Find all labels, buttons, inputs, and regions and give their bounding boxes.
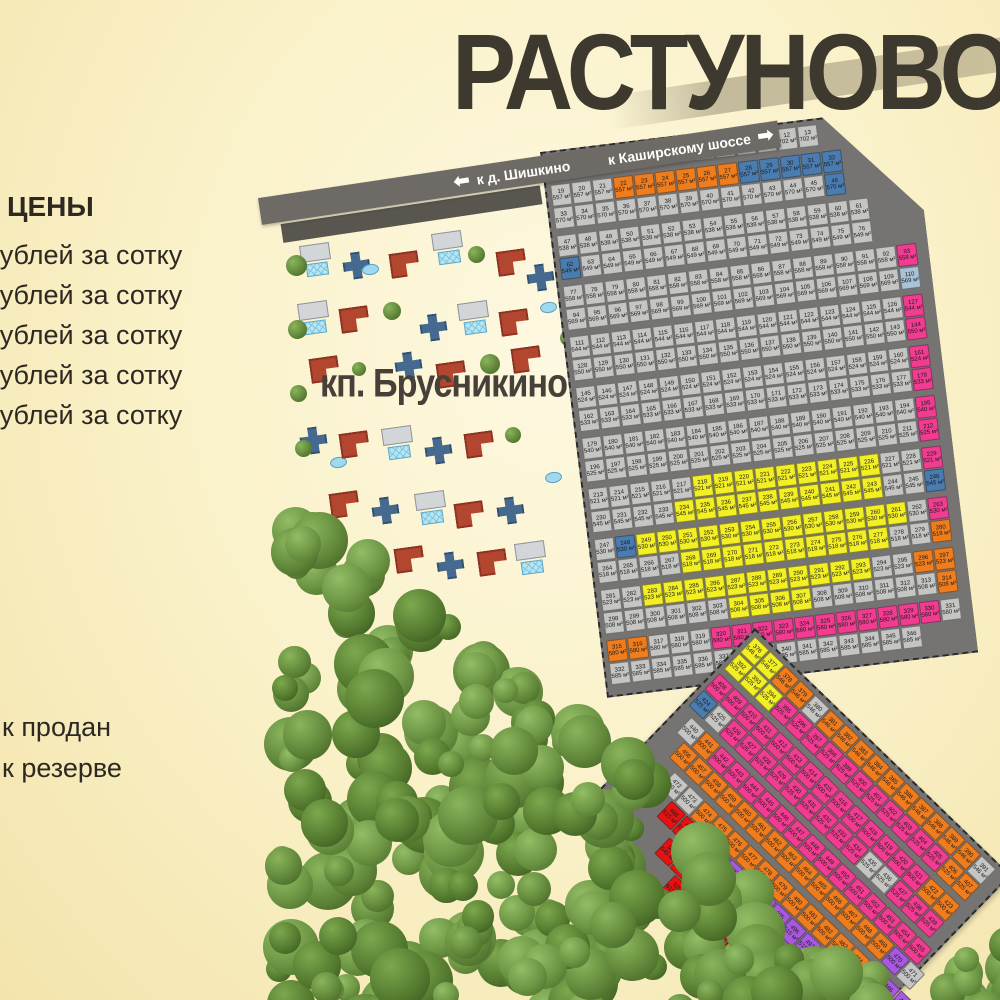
plot-242[interactable]: 242545 м² bbox=[840, 478, 863, 502]
plot-226[interactable]: 226521 м² bbox=[858, 453, 881, 477]
plot-88[interactable]: 88558 м² bbox=[792, 256, 815, 280]
plot-62[interactable]: 62549 м² bbox=[559, 256, 582, 280]
plot-147[interactable]: 147524 м² bbox=[617, 380, 640, 404]
plot-221[interactable]: 221521 м² bbox=[754, 466, 777, 490]
plot-271[interactable]: 271518 м² bbox=[742, 542, 765, 566]
plot-342[interactable]: 342585 м² bbox=[817, 635, 840, 659]
plot-341[interactable]: 341585 м² bbox=[796, 638, 819, 662]
plot-136[interactable]: 136550 м² bbox=[738, 337, 761, 361]
plot-308[interactable]: 308508 м² bbox=[811, 585, 834, 609]
plot-234[interactable]: 234545 м² bbox=[674, 499, 697, 523]
plot-197[interactable]: 197525 м² bbox=[605, 456, 628, 480]
plot-99[interactable]: 99569 м² bbox=[670, 294, 693, 318]
plot-295[interactable]: 295523 м² bbox=[892, 552, 915, 576]
plot-313[interactable]: 313508 м² bbox=[915, 572, 938, 596]
plot-293[interactable]: 293523 м² bbox=[850, 557, 873, 581]
plot-345[interactable]: 345585 м² bbox=[880, 628, 903, 652]
plot-141[interactable]: 141550 м² bbox=[843, 324, 866, 348]
plot-71[interactable]: 71549 м² bbox=[747, 233, 770, 257]
plot-235[interactable]: 235545 м² bbox=[694, 496, 717, 520]
plot-297[interactable]: 297523 м² bbox=[933, 547, 956, 571]
plot-104[interactable]: 104569 м² bbox=[774, 281, 797, 305]
plot-250[interactable]: 250530 м² bbox=[656, 529, 679, 553]
plot-94[interactable]: 94569 м² bbox=[565, 307, 588, 331]
plot-275[interactable]: 275518 м² bbox=[826, 532, 849, 556]
plot-56[interactable]: 56538 м² bbox=[744, 210, 767, 234]
plot-287[interactable]: 287523 м² bbox=[725, 572, 748, 596]
plot-115[interactable]: 115544 м² bbox=[652, 324, 675, 348]
plot-166[interactable]: 166533 м² bbox=[661, 398, 684, 422]
plot-263[interactable]: 263530 м² bbox=[927, 496, 950, 520]
plot-268[interactable]: 268518 м² bbox=[680, 550, 703, 574]
plot-258[interactable]: 258530 м² bbox=[823, 509, 846, 533]
plot-245[interactable]: 245545 м² bbox=[903, 471, 926, 495]
plot-257[interactable]: 257530 м² bbox=[802, 511, 825, 535]
plot-264[interactable]: 264518 м² bbox=[596, 560, 619, 584]
plot-211[interactable]: 211525 м² bbox=[897, 420, 920, 444]
plot-132[interactable]: 132550 м² bbox=[655, 347, 678, 371]
plot-244[interactable]: 244545 м² bbox=[882, 473, 905, 497]
plot-83[interactable]: 83558 м² bbox=[688, 268, 711, 292]
plot-165[interactable]: 165533 м² bbox=[640, 400, 663, 424]
plot-193[interactable]: 193540 м² bbox=[873, 400, 896, 424]
plot-330[interactable]: 330580 м² bbox=[919, 600, 942, 624]
plot-280[interactable]: 280518 м² bbox=[930, 519, 953, 543]
plot-231[interactable]: 231545 м² bbox=[611, 507, 634, 531]
plot-49[interactable]: 49538 м² bbox=[598, 228, 621, 252]
plot-78[interactable]: 78558 м² bbox=[583, 281, 606, 305]
plot-192[interactable]: 192540 м² bbox=[852, 402, 875, 426]
plot-306[interactable]: 306508 м² bbox=[769, 590, 792, 614]
plot-93[interactable]: 93558 м² bbox=[896, 243, 919, 267]
plot-346[interactable]: 346585 м² bbox=[901, 625, 924, 649]
plot-65[interactable]: 65549 м² bbox=[622, 248, 645, 272]
plot-28[interactable]: 28557 м² bbox=[738, 160, 761, 184]
plot-334[interactable]: 334585 м² bbox=[651, 656, 674, 680]
plot-72[interactable]: 72549 м² bbox=[768, 230, 791, 254]
plot-207[interactable]: 207525 м² bbox=[813, 430, 836, 454]
plot-146[interactable]: 146524 м² bbox=[596, 382, 619, 406]
plot-32[interactable]: 32557 м² bbox=[821, 149, 844, 173]
plot-66[interactable]: 66549 м² bbox=[642, 246, 665, 270]
plot-98[interactable]: 98569 м² bbox=[649, 296, 672, 320]
plot-97[interactable]: 97569 м² bbox=[628, 299, 651, 323]
plot-333[interactable]: 333585 м² bbox=[630, 658, 653, 682]
plot-24[interactable]: 24557 м² bbox=[654, 170, 677, 194]
plot-210[interactable]: 210525 м² bbox=[876, 423, 899, 447]
plot-298[interactable]: 298508 м² bbox=[603, 610, 626, 634]
plot-183[interactable]: 183540 м² bbox=[665, 425, 688, 449]
plot-29[interactable]: 29557 м² bbox=[759, 157, 782, 181]
plot-261[interactable]: 261530 м² bbox=[885, 501, 908, 525]
plot-328[interactable]: 328580 м² bbox=[877, 605, 900, 629]
plot-169[interactable]: 169533 м² bbox=[724, 390, 747, 414]
plot-248[interactable]: 248530 м² bbox=[614, 534, 637, 558]
plot-153[interactable]: 153524 м² bbox=[742, 365, 765, 389]
plot-19[interactable]: 19557 м² bbox=[550, 183, 573, 207]
plot-117[interactable]: 117544 м² bbox=[694, 319, 717, 343]
plot-276[interactable]: 276518 м² bbox=[847, 529, 870, 553]
plot-265[interactable]: 265518 м² bbox=[617, 557, 640, 581]
plot-110[interactable]: 110569 м² bbox=[899, 266, 922, 290]
plot-247[interactable]: 247530 м² bbox=[594, 537, 617, 561]
plot-249[interactable]: 249530 м² bbox=[635, 532, 658, 556]
plot-310[interactable]: 310508 м² bbox=[853, 580, 876, 604]
plot-21[interactable]: 21557 м² bbox=[592, 177, 615, 201]
plot-33[interactable]: 33570 м² bbox=[553, 205, 576, 229]
plot-343[interactable]: 343585 м² bbox=[838, 633, 861, 657]
plot-272[interactable]: 272518 м² bbox=[763, 539, 786, 563]
plot-266[interactable]: 266518 м² bbox=[638, 555, 661, 579]
plot-238[interactable]: 238545 м² bbox=[757, 489, 780, 513]
plot-156[interactable]: 156524 м² bbox=[804, 357, 827, 381]
plot-213[interactable]: 213521 м² bbox=[587, 486, 610, 510]
plot-332[interactable]: 332585 м² bbox=[609, 661, 632, 685]
plot-292[interactable]: 292523 м² bbox=[829, 559, 852, 583]
plot-311[interactable]: 311508 м² bbox=[874, 577, 897, 601]
plot-52[interactable]: 52538 м² bbox=[661, 220, 684, 244]
plot-219[interactable]: 219521 м² bbox=[712, 471, 735, 495]
plot-222[interactable]: 222521 м² bbox=[775, 463, 798, 487]
plot-68[interactable]: 68549 м² bbox=[684, 241, 707, 265]
plot-186[interactable]: 186540 м² bbox=[727, 418, 750, 442]
plot-59[interactable]: 59538 м² bbox=[806, 202, 829, 226]
plot-329[interactable]: 329580 м² bbox=[898, 602, 921, 626]
plot-95[interactable]: 95569 м² bbox=[586, 304, 609, 328]
plot-324[interactable]: 324580 м² bbox=[794, 615, 817, 639]
plot-143[interactable]: 143550 м² bbox=[884, 319, 907, 343]
plot-31[interactable]: 31557 м² bbox=[800, 152, 823, 176]
plot-172[interactable]: 172533 м² bbox=[786, 382, 809, 406]
plot-134[interactable]: 134550 м² bbox=[697, 342, 720, 366]
plot-55[interactable]: 55538 м² bbox=[723, 213, 746, 237]
plot-223[interactable]: 223521 м² bbox=[796, 461, 819, 485]
plot-46[interactable]: 46570 м² bbox=[824, 172, 847, 196]
plot-44[interactable]: 44570 м² bbox=[782, 177, 805, 201]
plot-61[interactable]: 61538 м² bbox=[848, 197, 871, 221]
plot-108[interactable]: 108569 м² bbox=[857, 271, 880, 295]
plot-282[interactable]: 282523 м² bbox=[621, 585, 644, 609]
plot-168[interactable]: 168533 м² bbox=[703, 393, 726, 417]
plot-174[interactable]: 174533 м² bbox=[828, 377, 851, 401]
plot-269[interactable]: 269518 м² bbox=[701, 547, 724, 571]
plot-274[interactable]: 274518 м² bbox=[805, 534, 828, 558]
plot-260[interactable]: 260530 м² bbox=[865, 504, 888, 528]
plot-34[interactable]: 34570 м² bbox=[574, 203, 597, 227]
plot-344[interactable]: 344585 м² bbox=[859, 630, 882, 654]
plot-135[interactable]: 135550 м² bbox=[717, 339, 740, 363]
plot-317[interactable]: 317580 м² bbox=[648, 633, 671, 657]
plot-22[interactable]: 22557 м² bbox=[613, 175, 636, 199]
plot-243[interactable]: 243545 м² bbox=[861, 476, 884, 500]
plot-281[interactable]: 281523 м² bbox=[600, 588, 623, 612]
plot-53[interactable]: 53538 м² bbox=[681, 218, 704, 242]
plot-289[interactable]: 289523 м² bbox=[767, 567, 790, 591]
plot-309[interactable]: 309508 м² bbox=[832, 582, 855, 606]
plot-76[interactable]: 76549 м² bbox=[851, 220, 874, 244]
plot-109[interactable]: 109569 м² bbox=[878, 268, 901, 292]
plot-86[interactable]: 86558 м² bbox=[750, 261, 773, 285]
plot-300[interactable]: 300508 м² bbox=[644, 605, 667, 629]
plot-233[interactable]: 233545 м² bbox=[653, 501, 676, 525]
plot-252[interactable]: 252530 м² bbox=[698, 524, 721, 548]
plot-218[interactable]: 218521 м² bbox=[692, 474, 715, 498]
plot-157[interactable]: 157524 м² bbox=[825, 354, 848, 378]
plot-63[interactable]: 63549 м² bbox=[580, 253, 603, 277]
plot-323[interactable]: 323580 м² bbox=[773, 618, 796, 642]
plot-58[interactable]: 58538 м² bbox=[786, 205, 809, 229]
plot-152[interactable]: 152524 м² bbox=[721, 367, 744, 391]
plot-319[interactable]: 319580 м² bbox=[689, 628, 712, 652]
plot-251[interactable]: 251530 м² bbox=[677, 527, 700, 551]
plot-196[interactable]: 196525 м² bbox=[584, 459, 607, 483]
plot-240[interactable]: 240545 м² bbox=[799, 484, 822, 508]
plot-188[interactable]: 188540 м² bbox=[769, 413, 792, 437]
plot-206[interactable]: 206525 м² bbox=[792, 433, 815, 457]
plot-77[interactable]: 77558 м² bbox=[563, 284, 586, 308]
plot-80[interactable]: 80558 м² bbox=[625, 276, 648, 300]
plot-191[interactable]: 191540 м² bbox=[831, 405, 854, 429]
plot-291[interactable]: 291523 м² bbox=[808, 562, 831, 586]
plot-25[interactable]: 25557 м² bbox=[675, 167, 698, 191]
plot-81[interactable]: 81558 м² bbox=[646, 274, 669, 298]
plot-224[interactable]: 224521 м² bbox=[817, 458, 840, 482]
plot-37[interactable]: 37570 м² bbox=[636, 195, 659, 219]
plot-184[interactable]: 184540 м² bbox=[685, 423, 708, 447]
plot-170[interactable]: 170533 м² bbox=[745, 387, 768, 411]
plot-164[interactable]: 164533 м² bbox=[619, 403, 642, 427]
plot-304[interactable]: 304508 м² bbox=[728, 595, 751, 619]
plot-299[interactable]: 299508 м² bbox=[623, 608, 646, 632]
plot-69[interactable]: 69549 м² bbox=[705, 238, 728, 262]
plot-119[interactable]: 119544 м² bbox=[735, 314, 758, 338]
plot-90[interactable]: 90558 м² bbox=[833, 251, 856, 275]
plot-149[interactable]: 149524 м² bbox=[658, 375, 681, 399]
plot-212[interactable]: 212525 м² bbox=[917, 418, 940, 442]
plot-70[interactable]: 70549 м² bbox=[726, 236, 749, 260]
plot-89[interactable]: 89558 м² bbox=[813, 253, 836, 277]
plot-167[interactable]: 167533 м² bbox=[682, 395, 705, 419]
plot-327[interactable]: 327580 м² bbox=[856, 607, 879, 631]
plot-284[interactable]: 284523 м² bbox=[662, 580, 685, 604]
plot-187[interactable]: 187540 м² bbox=[748, 415, 771, 439]
plot-303[interactable]: 303508 м² bbox=[707, 598, 730, 622]
plot-179[interactable]: 179540 м² bbox=[581, 436, 604, 460]
plot-181[interactable]: 181540 м² bbox=[623, 431, 646, 455]
plot-67[interactable]: 67549 м² bbox=[663, 243, 686, 267]
plot-199[interactable]: 199525 м² bbox=[647, 451, 670, 475]
plot-112[interactable]: 112544 м² bbox=[590, 332, 613, 356]
plot-124[interactable]: 124544 м² bbox=[840, 301, 863, 325]
plot-113[interactable]: 113544 м² bbox=[610, 329, 633, 353]
plot-215[interactable]: 215521 м² bbox=[629, 481, 652, 505]
plot-155[interactable]: 155524 м² bbox=[783, 359, 806, 383]
plot-40[interactable]: 40570 м² bbox=[699, 187, 722, 211]
plot-177[interactable]: 177533 м² bbox=[890, 369, 913, 393]
plot-103[interactable]: 103569 м² bbox=[753, 284, 776, 308]
plot-296[interactable]: 296523 м² bbox=[912, 549, 935, 573]
plot-60[interactable]: 60538 м² bbox=[827, 200, 850, 224]
plot-162[interactable]: 162533 м² bbox=[578, 408, 601, 432]
plot-85[interactable]: 85558 м² bbox=[729, 263, 752, 287]
plot-42[interactable]: 42570 м² bbox=[740, 182, 763, 206]
plot-87[interactable]: 87558 м² bbox=[771, 258, 794, 282]
plot-189[interactable]: 189540 м² bbox=[790, 410, 813, 434]
plot-158[interactable]: 158524 м² bbox=[846, 352, 869, 376]
plot-175[interactable]: 175533 м² bbox=[849, 375, 872, 399]
plot-294[interactable]: 294523 м² bbox=[871, 554, 894, 578]
plot-202[interactable]: 202525 м² bbox=[709, 443, 732, 467]
plot-301[interactable]: 301508 м² bbox=[665, 603, 688, 627]
plot-79[interactable]: 79558 м² bbox=[604, 279, 627, 303]
plot-230[interactable]: 230545 м² bbox=[590, 509, 613, 533]
plot-107[interactable]: 107569 м² bbox=[836, 273, 859, 297]
plot-148[interactable]: 148524 м² bbox=[637, 377, 660, 401]
plot-38[interactable]: 38570 м² bbox=[657, 193, 680, 217]
plot-173[interactable]: 173533 м² bbox=[807, 380, 830, 404]
plot-64[interactable]: 64549 м² bbox=[601, 251, 624, 275]
plot-26[interactable]: 26557 м² bbox=[696, 165, 719, 189]
plot-285[interactable]: 285523 м² bbox=[683, 577, 706, 601]
plot-151[interactable]: 151524 м² bbox=[700, 370, 723, 394]
plot-120[interactable]: 120544 м² bbox=[756, 311, 779, 335]
plot-126[interactable]: 126544 м² bbox=[881, 296, 904, 320]
plot-73[interactable]: 73549 м² bbox=[788, 228, 811, 252]
plot-102[interactable]: 102569 м² bbox=[732, 286, 755, 310]
plot-305[interactable]: 305508 м² bbox=[749, 592, 772, 616]
plot-209[interactable]: 209525 м² bbox=[855, 425, 878, 449]
plot-137[interactable]: 137550 м² bbox=[759, 334, 782, 358]
plot-228[interactable]: 228521 м² bbox=[900, 448, 923, 472]
plot-123[interactable]: 123544 м² bbox=[819, 304, 842, 328]
plot-100[interactable]: 100569 м² bbox=[690, 291, 713, 315]
plot-232[interactable]: 232545 м² bbox=[632, 504, 655, 528]
plot-255[interactable]: 255530 м² bbox=[760, 516, 783, 540]
plot-74[interactable]: 74549 м² bbox=[809, 225, 832, 249]
plot-144[interactable]: 144550 м² bbox=[905, 316, 928, 340]
plot-302[interactable]: 302508 м² bbox=[686, 600, 709, 624]
plot-43[interactable]: 43570 м² bbox=[761, 180, 784, 204]
plot-35[interactable]: 35570 м² bbox=[595, 200, 618, 224]
plot-178[interactable]: 178533 м² bbox=[911, 367, 934, 391]
plot-283[interactable]: 283523 м² bbox=[642, 582, 665, 606]
plot-150[interactable]: 150524 м² bbox=[679, 372, 702, 396]
plot-54[interactable]: 54538 м² bbox=[702, 215, 725, 239]
plot-140[interactable]: 140550 м² bbox=[822, 327, 845, 351]
plot-259[interactable]: 259530 м² bbox=[844, 506, 867, 530]
plot-121[interactable]: 121544 м² bbox=[777, 309, 800, 333]
plot-27[interactable]: 27557 м² bbox=[717, 162, 740, 186]
plot-314[interactable]: 314508 м² bbox=[936, 569, 959, 593]
plot-214[interactable]: 214521 м² bbox=[608, 484, 631, 508]
plot-125[interactable]: 125544 м² bbox=[861, 299, 884, 323]
plot-320[interactable]: 320580 м² bbox=[710, 625, 733, 649]
plot-331[interactable]: 331580 м² bbox=[940, 597, 963, 621]
plot-114[interactable]: 114544 м² bbox=[631, 327, 654, 351]
plot-270[interactable]: 270518 м² bbox=[721, 544, 744, 568]
plot-316[interactable]: 316580 м² bbox=[627, 636, 650, 660]
plot-106[interactable]: 106569 м² bbox=[815, 276, 838, 300]
plot-256[interactable]: 256530 м² bbox=[781, 514, 804, 538]
plot-111[interactable]: 111544 м² bbox=[569, 334, 592, 358]
plot-326[interactable]: 326580 м² bbox=[835, 610, 858, 634]
plot-139[interactable]: 139550 м² bbox=[801, 329, 824, 353]
plot-30[interactable]: 30557 м² bbox=[779, 154, 802, 178]
plot-47[interactable]: 47538 м² bbox=[556, 233, 579, 257]
plot-57[interactable]: 57538 м² bbox=[765, 208, 788, 232]
plot-91[interactable]: 91558 м² bbox=[854, 248, 877, 272]
plot-133[interactable]: 133550 м² bbox=[676, 344, 699, 368]
plot-39[interactable]: 39570 м² bbox=[678, 190, 701, 214]
plot-237[interactable]: 237545 м² bbox=[736, 491, 759, 515]
plot-23[interactable]: 23557 м² bbox=[633, 172, 656, 196]
plot-84[interactable]: 84558 м² bbox=[708, 266, 731, 290]
plot-154[interactable]: 154524 м² bbox=[763, 362, 786, 386]
plot-131[interactable]: 131550 м² bbox=[634, 350, 657, 374]
plot-205[interactable]: 205525 м² bbox=[772, 435, 795, 459]
plot-278[interactable]: 278518 м² bbox=[888, 524, 911, 548]
plot-51[interactable]: 51538 м² bbox=[640, 223, 663, 247]
plot-194[interactable]: 194540 м² bbox=[894, 397, 917, 421]
plot-286[interactable]: 286523 м² bbox=[704, 575, 727, 599]
plot-176[interactable]: 176533 м² bbox=[870, 372, 893, 396]
plot-277[interactable]: 277518 м² bbox=[867, 526, 890, 550]
plot-159[interactable]: 159524 м² bbox=[867, 349, 890, 373]
plot-185[interactable]: 185540 м² bbox=[706, 420, 729, 444]
plot-288[interactable]: 288523 м² bbox=[746, 570, 769, 594]
plot-138[interactable]: 138550 м² bbox=[780, 332, 803, 356]
plot-217[interactable]: 217521 м² bbox=[671, 476, 694, 500]
plot-279[interactable]: 279518 м² bbox=[909, 521, 932, 545]
plot-50[interactable]: 50538 м² bbox=[619, 226, 642, 250]
plot-254[interactable]: 254530 м² bbox=[740, 519, 763, 543]
plot-48[interactable]: 48538 м² bbox=[577, 231, 600, 255]
plot-82[interactable]: 82558 м² bbox=[667, 271, 690, 295]
plot-190[interactable]: 190540 м² bbox=[810, 408, 833, 432]
plot-105[interactable]: 105569 м² bbox=[795, 278, 818, 302]
plot-290[interactable]: 290523 м² bbox=[787, 565, 810, 589]
plot-325[interactable]: 325580 м² bbox=[814, 613, 837, 637]
plot-307[interactable]: 307508 м² bbox=[790, 587, 813, 611]
plot-239[interactable]: 239545 м² bbox=[778, 486, 801, 510]
plot-267[interactable]: 267518 м² bbox=[659, 552, 682, 576]
plot-130[interactable]: 130550 м² bbox=[613, 352, 636, 376]
plot-160[interactable]: 160524 м² bbox=[888, 347, 911, 371]
plot-200[interactable]: 200525 м² bbox=[667, 448, 690, 472]
plot-171[interactable]: 171533 м² bbox=[765, 385, 788, 409]
plot-273[interactable]: 273518 м² bbox=[784, 537, 807, 561]
plot-315[interactable]: 315580 м² bbox=[606, 638, 629, 662]
plot-36[interactable]: 36570 м² bbox=[615, 198, 638, 222]
plot-127[interactable]: 127544 м² bbox=[902, 293, 925, 317]
plot-201[interactable]: 201525 м² bbox=[688, 446, 711, 470]
plot-216[interactable]: 216521 м² bbox=[650, 479, 673, 503]
plot-241[interactable]: 241545 м² bbox=[819, 481, 842, 505]
plot-220[interactable]: 220521 м² bbox=[733, 468, 756, 492]
plot-75[interactable]: 75549 м² bbox=[830, 223, 853, 247]
plot-101[interactable]: 101569 м² bbox=[711, 289, 734, 313]
plot-204[interactable]: 204525 м² bbox=[751, 438, 774, 462]
plot-229[interactable]: 229521 м² bbox=[921, 445, 944, 469]
plot-182[interactable]: 182540 м² bbox=[644, 428, 667, 452]
plot-45[interactable]: 45570 м² bbox=[803, 175, 826, 199]
plot-253[interactable]: 253530 м² bbox=[719, 522, 742, 546]
plot-128[interactable]: 128550 м² bbox=[572, 357, 595, 381]
plot-41[interactable]: 41570 м² bbox=[720, 185, 743, 209]
plot-236[interactable]: 236545 м² bbox=[715, 494, 738, 518]
plot-198[interactable]: 198525 м² bbox=[626, 453, 649, 477]
plot-208[interactable]: 208525 м² bbox=[834, 428, 857, 452]
